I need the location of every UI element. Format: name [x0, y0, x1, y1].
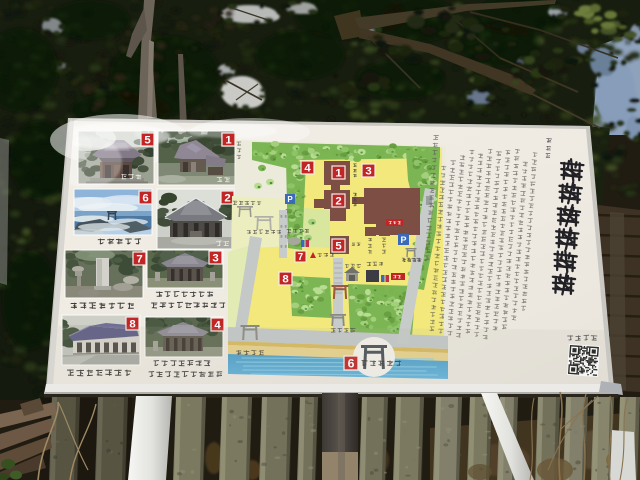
svg-text:P: P: [287, 195, 293, 204]
svg-text:4: 4: [304, 163, 311, 175]
svg-text:1: 1: [335, 168, 342, 180]
svg-text:5: 5: [144, 135, 151, 147]
svg-text:2: 2: [335, 196, 341, 208]
svg-text:1: 1: [225, 135, 232, 147]
svg-text:6: 6: [142, 193, 148, 205]
svg-text:7: 7: [136, 254, 142, 266]
svg-text:2: 2: [224, 193, 230, 205]
svg-text:7: 7: [298, 252, 303, 263]
svg-text:P: P: [400, 235, 406, 245]
svg-text:5: 5: [335, 241, 342, 253]
svg-text:8: 8: [282, 274, 288, 286]
svg-text:3: 3: [212, 253, 218, 265]
svg-text:3: 3: [365, 166, 371, 178]
